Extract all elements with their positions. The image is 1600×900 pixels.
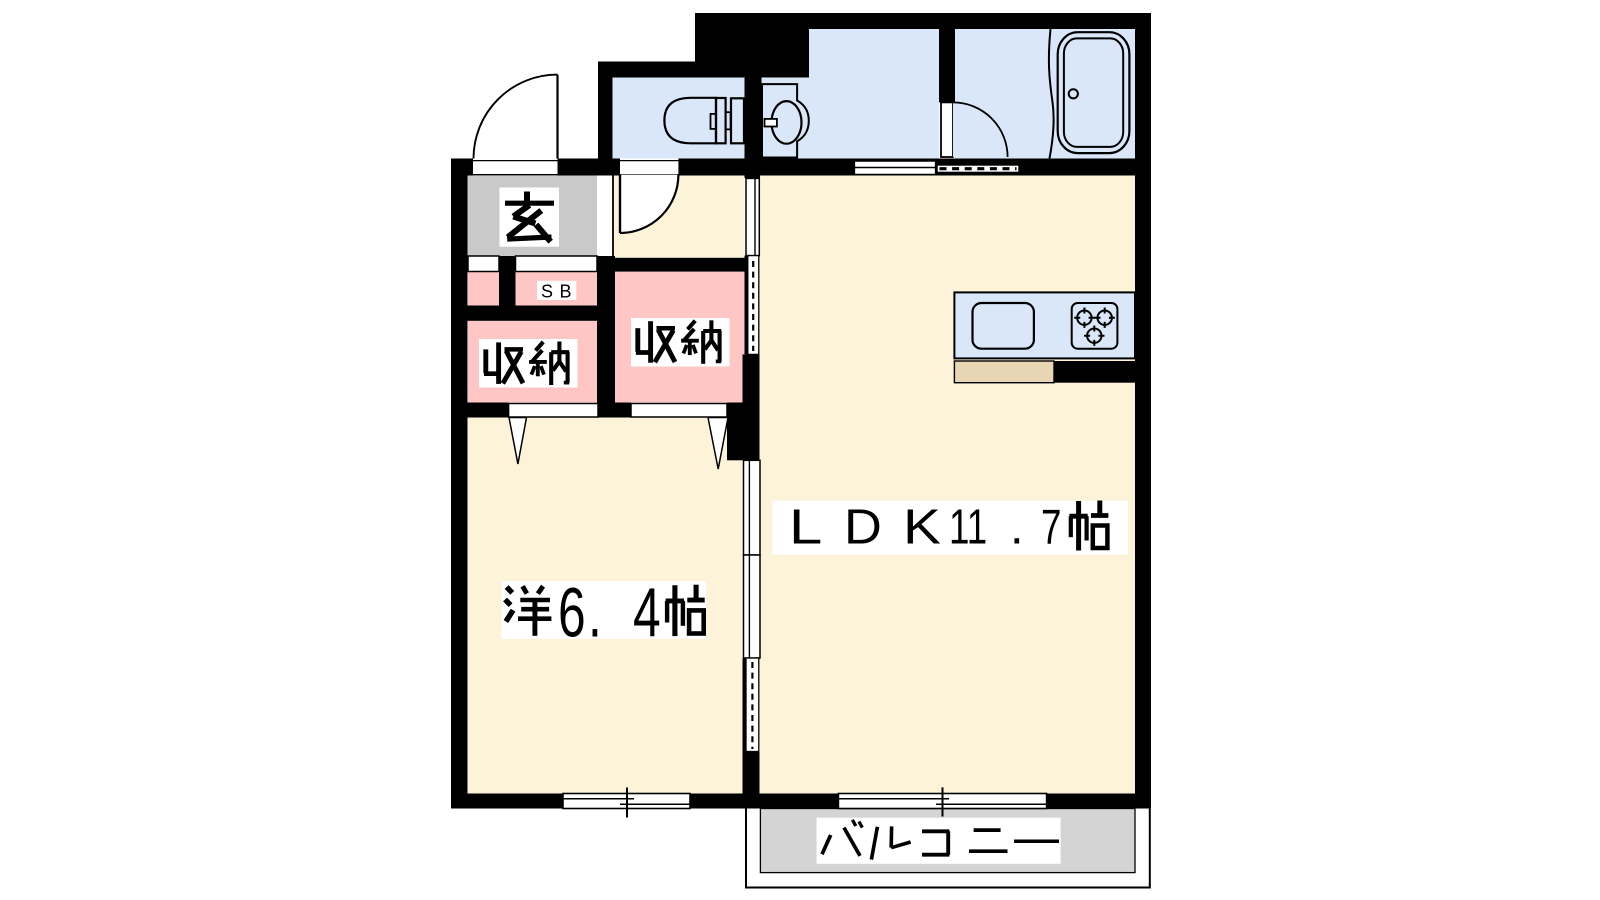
svg-text:7: 7 [1041, 500, 1061, 554]
svg-text:D: D [844, 499, 882, 554]
svg-text:K: K [903, 500, 941, 554]
svg-text:4: 4 [633, 573, 661, 651]
svg-text:B: B [559, 281, 571, 301]
svg-text:11: 11 [949, 500, 987, 554]
svg-text:6: 6 [558, 573, 586, 651]
svg-text:.: . [588, 573, 602, 651]
svg-text:S: S [541, 281, 553, 301]
svg-text:.: . [1010, 500, 1024, 554]
svg-text:L: L [789, 499, 822, 554]
